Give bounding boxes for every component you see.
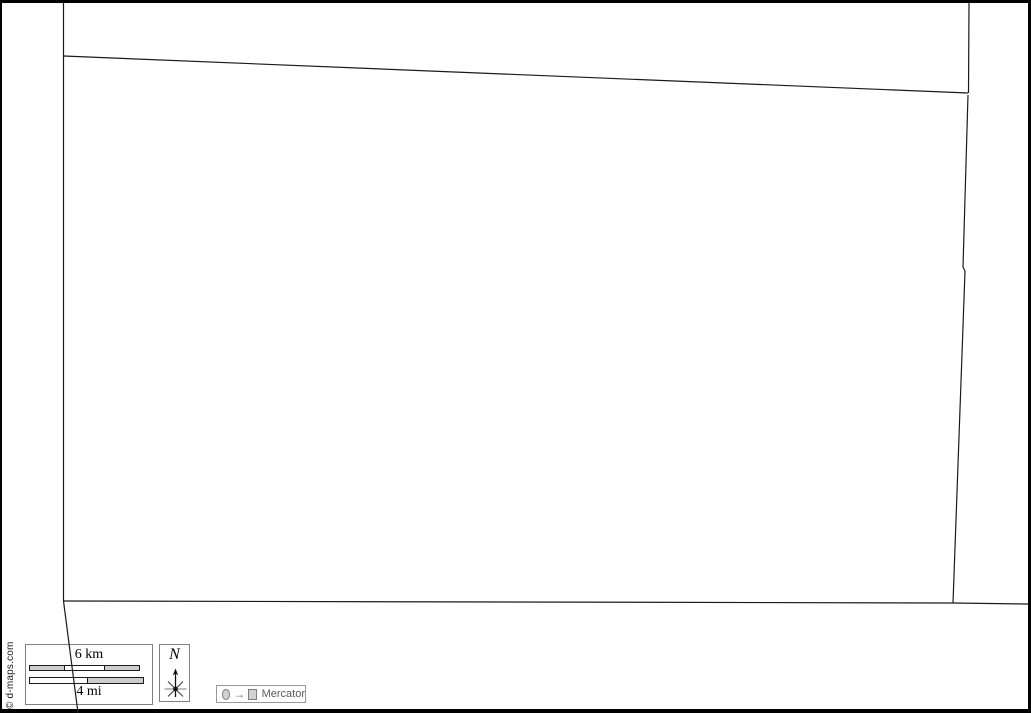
north-arrow-box: N <box>159 644 190 702</box>
scale-km-label: 6 km <box>26 648 152 662</box>
scale-segment <box>105 665 140 671</box>
map-canvas: 6 km 4 mi N → Mercator © d-maps.com <box>0 0 1031 713</box>
projected-square-icon <box>248 689 256 700</box>
scale-bar-km <box>29 665 140 671</box>
frame-bottom <box>0 709 1031 713</box>
projection-arrow-icon: → <box>233 689 245 699</box>
scale-bar-box: 6 km 4 mi <box>25 644 153 705</box>
frame-left <box>0 0 2 713</box>
copyright-watermark: © d-maps.com <box>5 641 16 709</box>
scale-segment <box>29 677 88 684</box>
compass-rose-icon <box>160 667 191 701</box>
scale-segment <box>29 665 65 671</box>
scale-segment <box>65 665 105 671</box>
projection-label: Mercator <box>262 688 305 700</box>
boundary-northeast-border <box>969 3 970 93</box>
boundary-south-border <box>64 601 1029 604</box>
boundary-east-border <box>953 95 968 603</box>
projection-box: → Mercator <box>216 685 306 703</box>
scale-segment <box>88 677 144 684</box>
frame-top <box>0 0 1031 3</box>
scale-mi-label: 4 mi <box>26 685 152 699</box>
north-label: N <box>160 647 189 663</box>
scale-bar-mi <box>29 677 144 684</box>
map-boundary-layer <box>0 0 1031 713</box>
globe-circle-icon <box>222 689 230 700</box>
boundary-north-border <box>64 56 969 93</box>
